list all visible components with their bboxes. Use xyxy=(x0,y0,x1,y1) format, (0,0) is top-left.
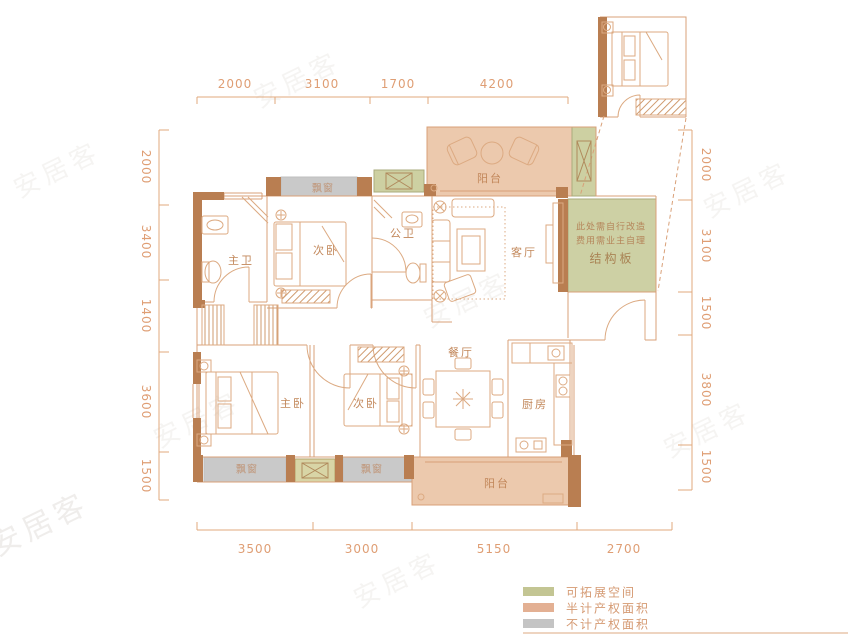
room-label-dining: 餐厅 xyxy=(448,344,474,360)
dim-right-5: 1500 xyxy=(699,450,713,485)
dim-left-2: 3400 xyxy=(139,225,153,260)
dim-top-2: 3100 xyxy=(305,77,340,91)
dim-left-4: 3600 xyxy=(139,385,153,420)
legend-label-expandable: 可拓展空间 xyxy=(566,584,636,601)
legend-swatch-half-area xyxy=(523,603,554,612)
dim-bottom-2: 3000 xyxy=(345,542,380,556)
door-arc-public-bath xyxy=(372,238,406,272)
structural-note-line1: 此处需自行改造 xyxy=(576,220,646,233)
structural-slab-label: 结构板 xyxy=(589,250,634,267)
room-label-bay-bottom-left: 飘窗 xyxy=(236,461,258,476)
bedroom-bottom-furniture xyxy=(344,347,412,434)
room-label-balcony-bottom: 阳台 xyxy=(484,475,510,491)
structural-note-line2: 费用需业主自理 xyxy=(576,234,646,247)
door-arc-master-bath xyxy=(214,267,249,302)
room-label-bay-bottom-right: 飘窗 xyxy=(361,461,383,476)
dim-line-bottom xyxy=(197,522,672,530)
dim-left-3: 1400 xyxy=(139,299,153,334)
legend-label-half-area: 半计产权面积 xyxy=(566,600,650,617)
floor-plan-page: 安居客 安居客 安居客 安居客 安居客 安居客 安居客 安居客 xyxy=(0,0,850,638)
dim-left-1: 2000 xyxy=(139,150,153,185)
public-bath-fixtures xyxy=(374,200,426,283)
dim-bottom-4: 2700 xyxy=(607,542,642,556)
dining-furniture xyxy=(423,358,503,440)
dim-right-4: 3800 xyxy=(699,373,713,408)
legend-swatch-expandable xyxy=(523,587,554,596)
room-label-bay-top: 飘窗 xyxy=(312,180,334,195)
legend-swatch-excluded-area xyxy=(523,619,554,628)
dim-top-4: 4200 xyxy=(480,77,515,91)
dim-top-3: 1700 xyxy=(381,77,416,91)
master-bedroom-furniture xyxy=(197,360,278,446)
room-label-balcony-top: 阳台 xyxy=(477,170,503,186)
dim-bottom-1: 3500 xyxy=(238,542,273,556)
floor-plan-canvas xyxy=(0,0,850,638)
dim-left-5: 1500 xyxy=(139,459,153,494)
room-label-bedroom-bottom: 次卧 xyxy=(353,395,379,411)
living-room-furniture xyxy=(432,199,563,302)
door-arc-entry xyxy=(605,300,645,340)
legend-label-excluded-area: 不计产权面积 xyxy=(566,616,650,633)
room-label-master-bedroom: 主卧 xyxy=(280,395,306,411)
dim-line-right xyxy=(678,130,692,490)
dim-top-1: 2000 xyxy=(218,77,253,91)
dim-right-3: 1500 xyxy=(699,296,713,331)
room-label-master-bath: 主卫 xyxy=(228,252,254,268)
room-label-living: 客厅 xyxy=(511,244,537,260)
room-label-kitchen: 厨房 xyxy=(522,396,548,412)
dim-line-left xyxy=(159,130,169,500)
dim-right-1: 2000 xyxy=(699,148,713,183)
room-label-bedroom-top: 次卧 xyxy=(313,242,339,258)
dim-right-2: 3100 xyxy=(699,229,713,264)
dim-bottom-3: 5150 xyxy=(477,542,512,556)
callout-room-furniture xyxy=(602,22,686,115)
corridor-closets xyxy=(202,305,278,345)
dim-line-top xyxy=(197,97,568,104)
room-label-public-bath: 公卫 xyxy=(390,225,416,241)
door-arc-bedroom-top xyxy=(337,274,371,308)
